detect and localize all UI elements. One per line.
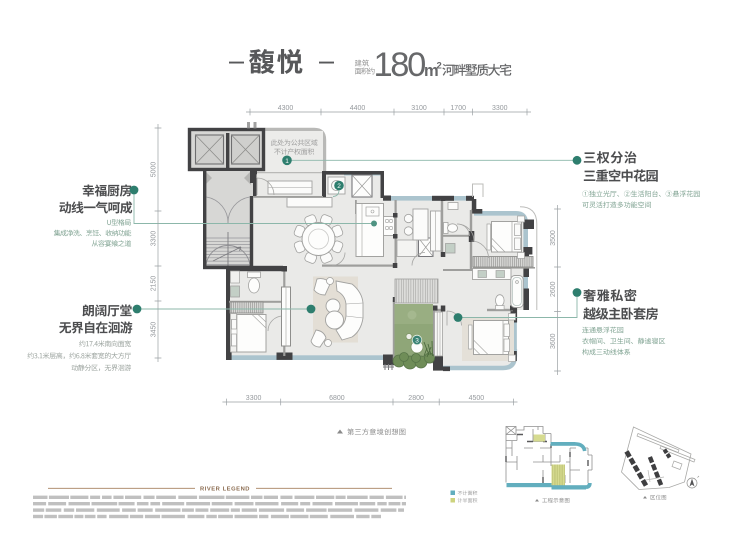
svg-text:3450: 3450 — [151, 322, 158, 338]
svg-text:4500: 4500 — [469, 395, 485, 402]
svg-text:1700: 1700 — [450, 105, 466, 112]
svg-text:2: 2 — [437, 61, 442, 72]
svg-text:2600: 2600 — [550, 281, 557, 297]
svg-text:3300: 3300 — [246, 395, 262, 402]
svg-text:180: 180 — [374, 46, 426, 84]
svg-text:6800: 6800 — [329, 395, 345, 402]
svg-text:1: 1 — [285, 158, 289, 165]
svg-text:3: 3 — [415, 338, 419, 345]
svg-text:5000: 5000 — [151, 162, 158, 178]
svg-text:RIVER LEGEND: RIVER LEGEND — [200, 487, 250, 493]
svg-text:3300: 3300 — [492, 105, 508, 112]
svg-text:3100: 3100 — [411, 105, 427, 112]
svg-text:3500: 3500 — [550, 230, 557, 246]
svg-text:2150: 2150 — [151, 276, 158, 292]
svg-text:2: 2 — [337, 183, 341, 190]
svg-text:4300: 4300 — [278, 105, 294, 112]
svg-text:3600: 3600 — [550, 333, 557, 349]
svg-text:3300: 3300 — [151, 231, 158, 247]
svg-text:2800: 2800 — [408, 395, 424, 402]
svg-text:4400: 4400 — [350, 105, 366, 112]
